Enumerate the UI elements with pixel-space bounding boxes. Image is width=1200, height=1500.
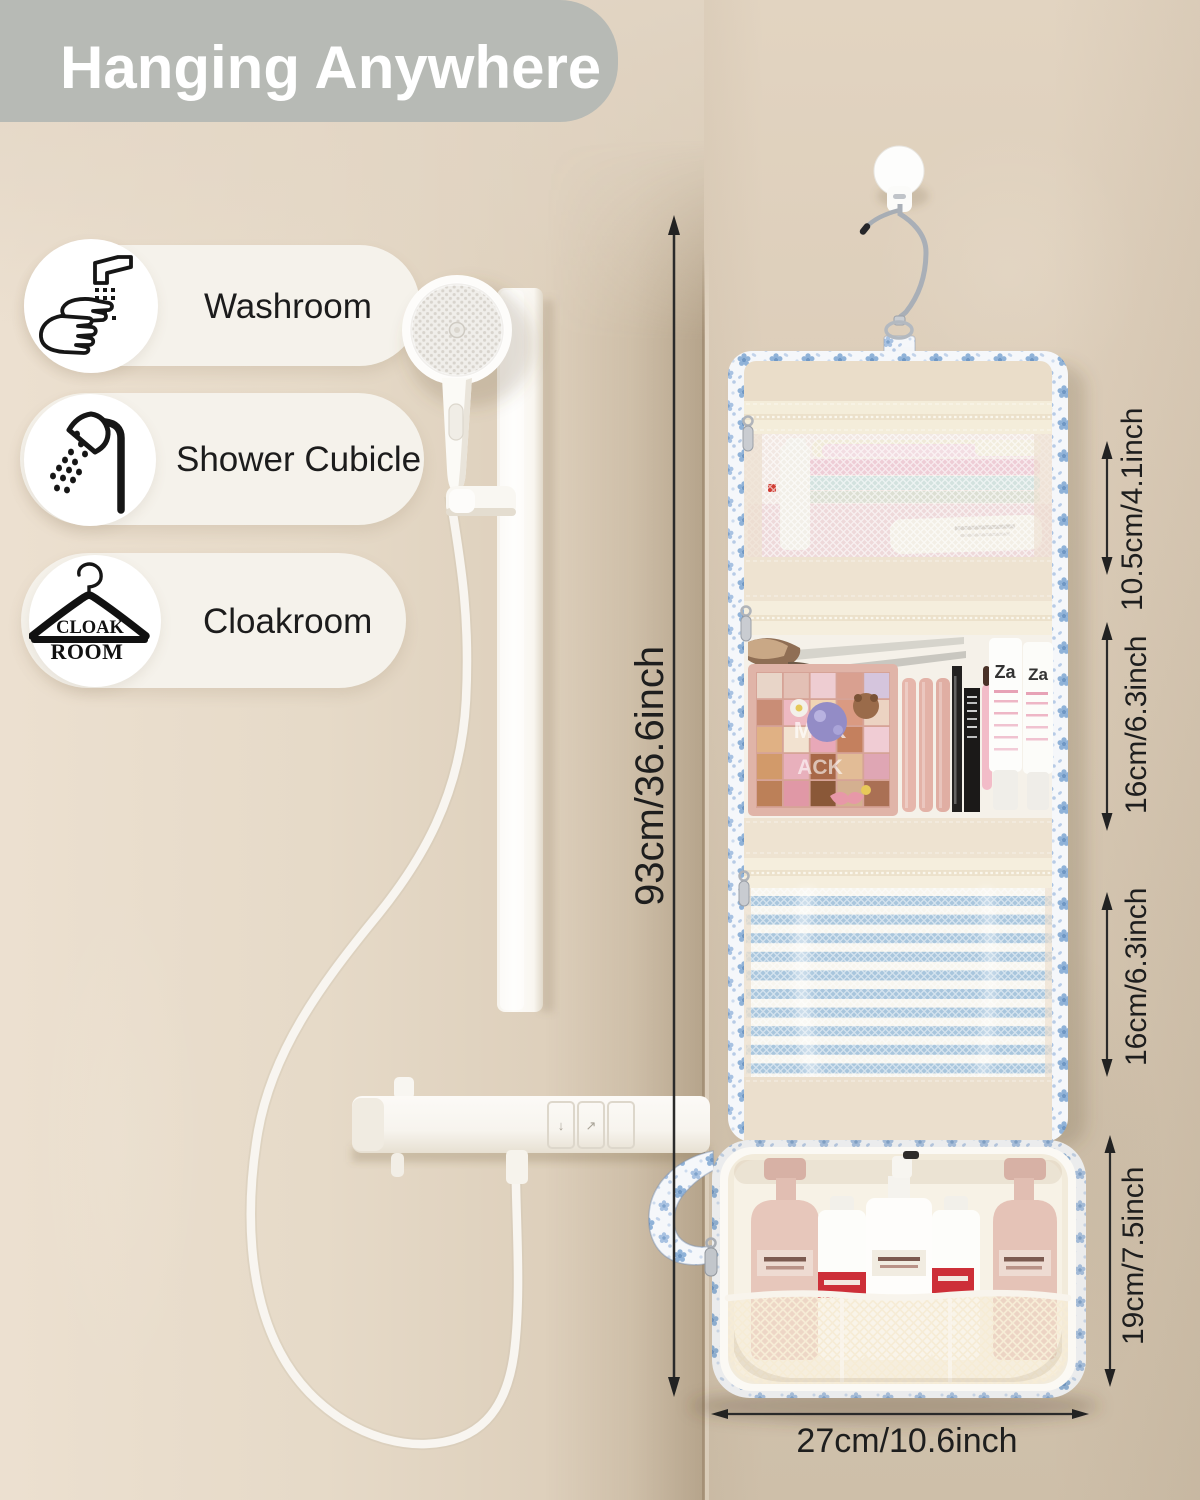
svg-text:10.5cm/4.1inch: 10.5cm/4.1inch xyxy=(1116,408,1149,611)
svg-text:↗: ↗ xyxy=(586,1118,597,1133)
svg-text:93cm/36.6inch: 93cm/36.6inch xyxy=(628,646,672,906)
svg-text:27cm/10.6inch: 27cm/10.6inch xyxy=(796,1422,1017,1460)
svg-text:Za: Za xyxy=(1028,665,1048,684)
svg-text:↓: ↓ xyxy=(558,1118,565,1133)
svg-text:Za: Za xyxy=(994,662,1016,682)
svg-text:ACK: ACK xyxy=(797,756,843,779)
svg-text:16cm/6.3inch: 16cm/6.3inch xyxy=(1120,636,1153,814)
svg-text:19cm/7.5inch: 19cm/7.5inch xyxy=(1117,1167,1150,1345)
svg-text:16cm/6.3inch: 16cm/6.3inch xyxy=(1120,888,1153,1066)
